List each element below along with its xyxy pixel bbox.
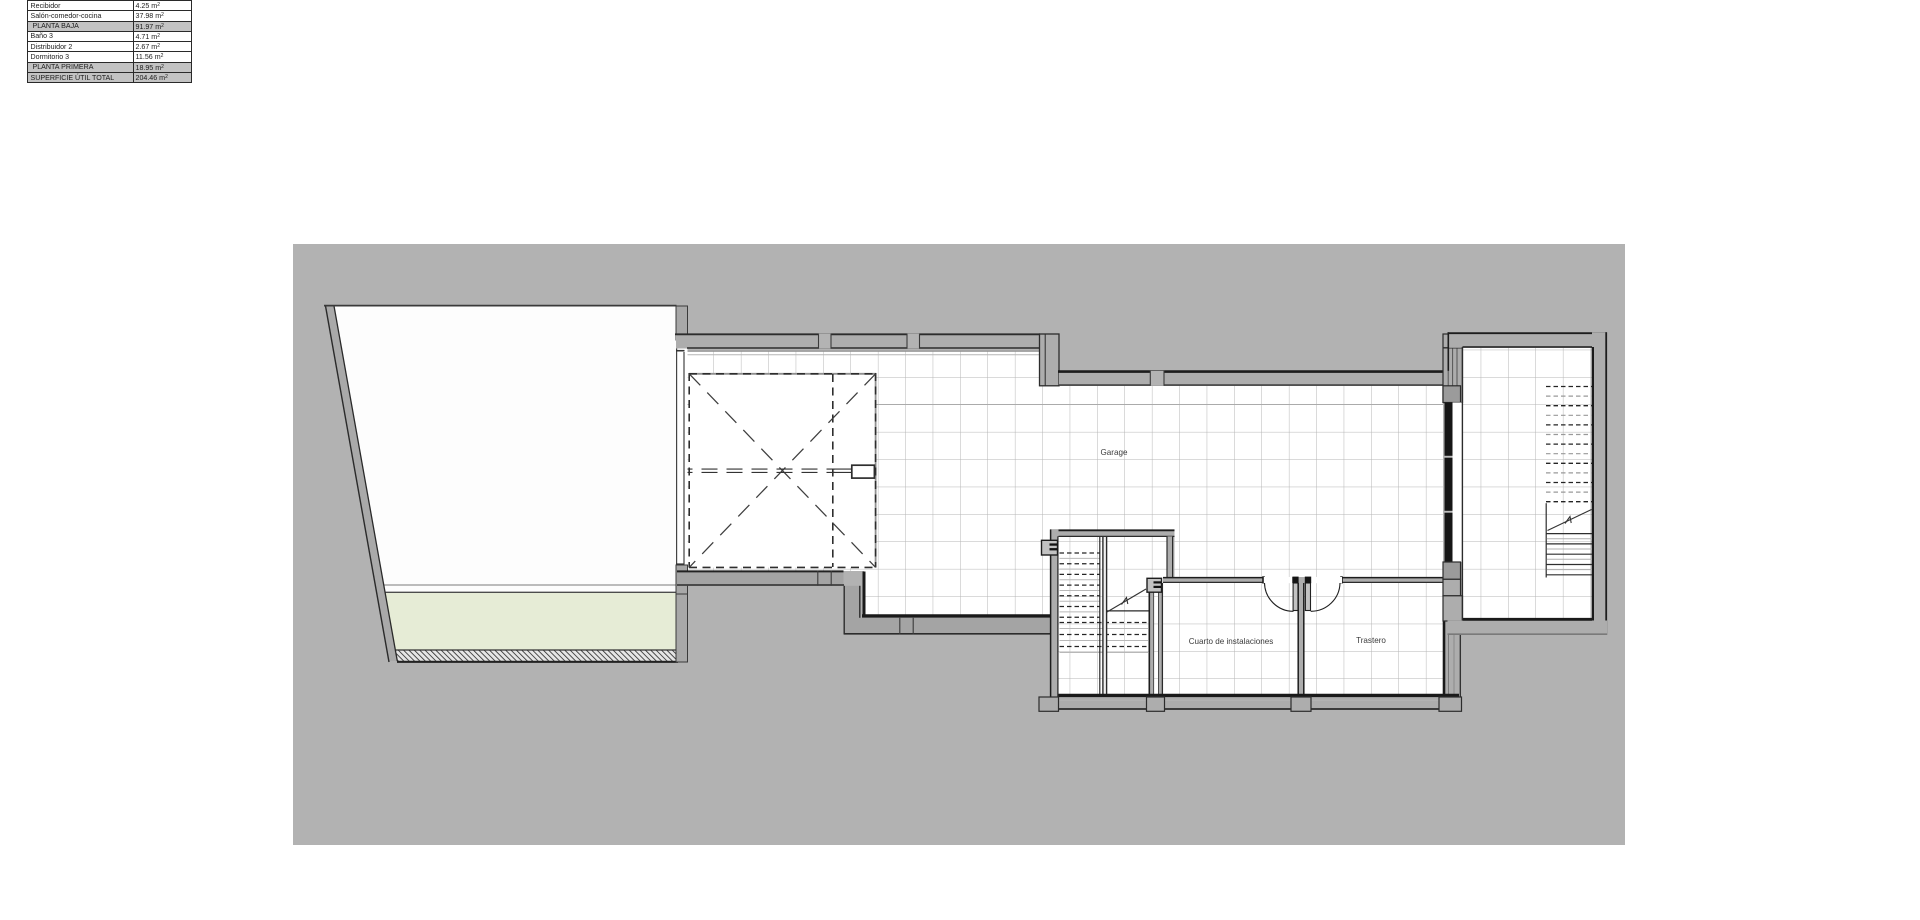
svg-text:Garage: Garage [1101,448,1128,457]
svg-text:Cuarto de instalaciones: Cuarto de instalaciones [1189,637,1274,646]
svg-text:Trastero: Trastero [1356,636,1386,645]
